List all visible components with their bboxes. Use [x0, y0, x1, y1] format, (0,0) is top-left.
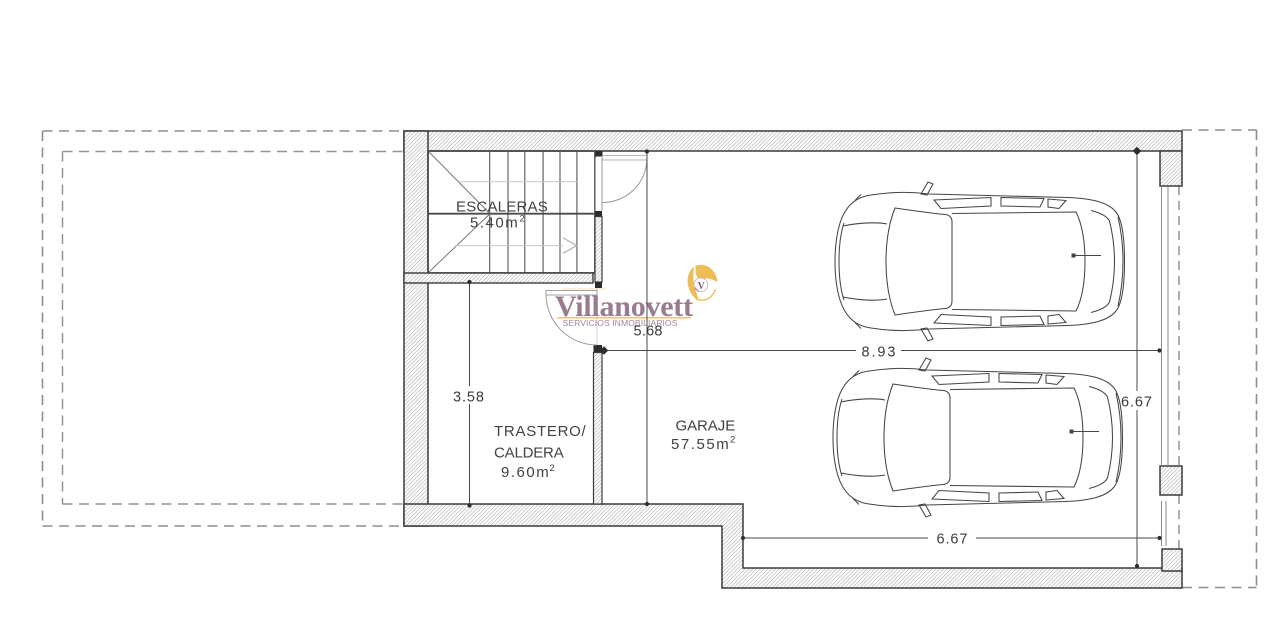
svg-text:GARAJE: GARAJE [676, 418, 736, 435]
svg-text:5.40m: 5.40m [470, 215, 518, 232]
svg-text:2: 2 [730, 435, 735, 446]
svg-text:6.67: 6.67 [937, 532, 968, 548]
svg-text:3.58: 3.58 [453, 390, 484, 406]
svg-text:8.93: 8.93 [862, 345, 896, 361]
svg-text:TRASTERO/: TRASTERO/ [494, 423, 587, 440]
svg-text:ESCALERAS: ESCALERAS [456, 199, 548, 216]
svg-text:6.67: 6.67 [1121, 395, 1152, 411]
svg-text:2: 2 [550, 463, 555, 474]
svg-text:5.68: 5.68 [634, 324, 663, 340]
svg-text:9.60m: 9.60m [501, 464, 549, 481]
svg-text:CALDERA: CALDERA [494, 445, 564, 462]
svg-text:V: V [698, 281, 706, 292]
svg-text:2: 2 [520, 214, 525, 225]
